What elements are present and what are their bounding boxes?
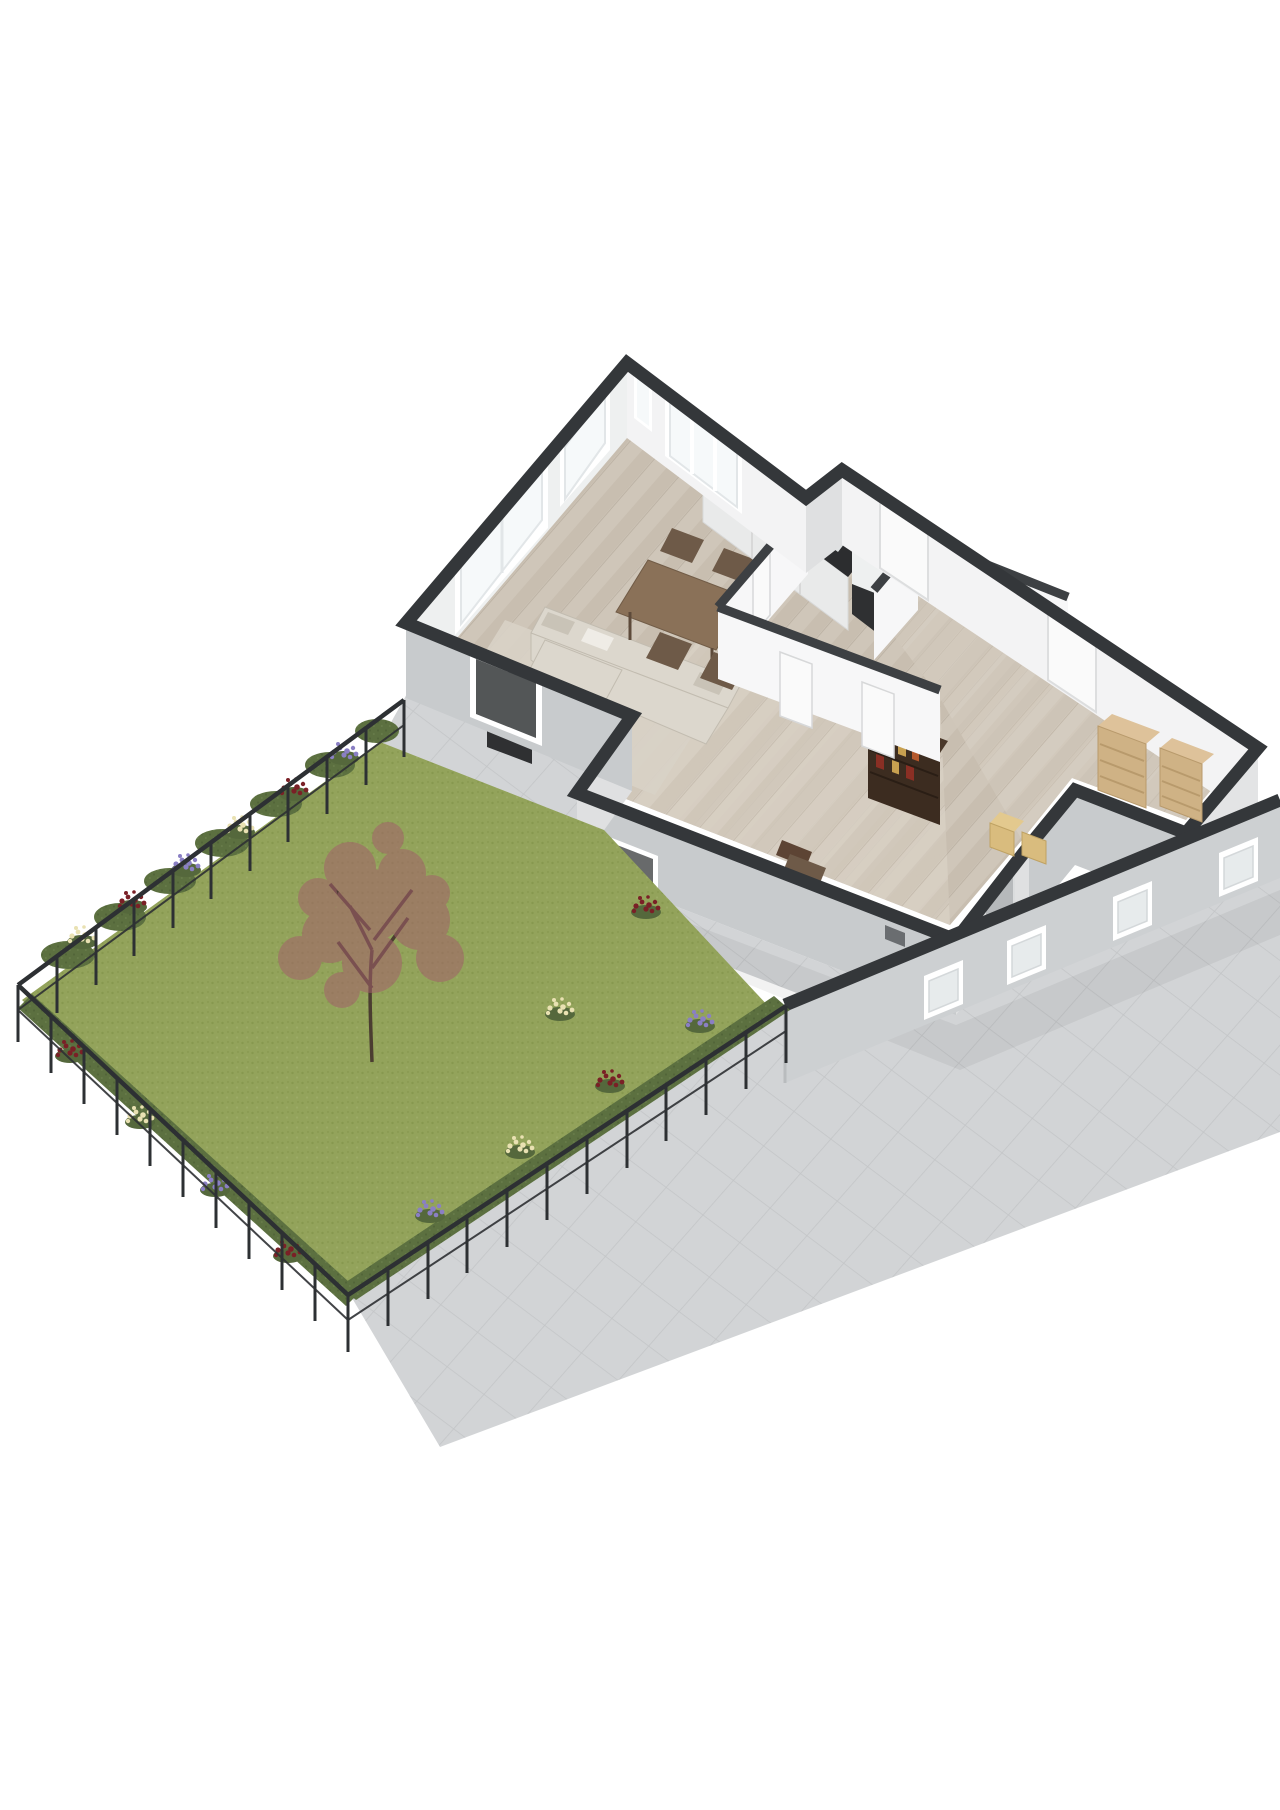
- floorplan-render: [0, 0, 1280, 1810]
- books: [892, 760, 899, 775]
- interior-door: [862, 682, 894, 758]
- interior-door: [780, 652, 812, 728]
